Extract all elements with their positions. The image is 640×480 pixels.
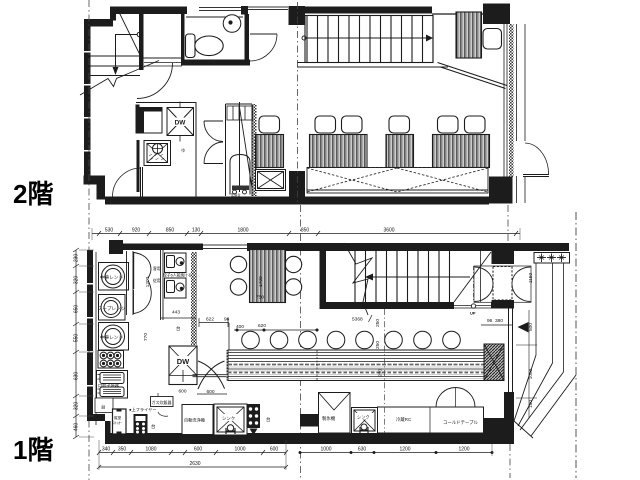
svg-text:650: 650: [74, 305, 80, 314]
svg-text:920: 920: [132, 228, 141, 234]
svg-text:1200: 1200: [145, 276, 151, 287]
svg-text:340: 340: [102, 447, 111, 453]
svg-text:1000: 1000: [320, 447, 331, 453]
svg-text:600: 600: [194, 447, 203, 453]
svg-text:230: 230: [74, 254, 80, 263]
svg-text:餃子6人前焼ける台: 餃子6人前焼ける台: [163, 273, 196, 278]
svg-text:ｽﾄｯｶｰ: ｽﾄｯｶｰ: [113, 420, 122, 425]
svg-text:中華レンジ: 中華レンジ: [100, 274, 123, 281]
svg-text:従用: 従用: [153, 278, 161, 283]
svg-text:600: 600: [179, 389, 187, 395]
svg-text:2630: 2630: [189, 461, 200, 467]
svg-text:550: 550: [74, 334, 80, 343]
svg-text:中華レンジ: 中華レンジ: [100, 334, 123, 341]
svg-text:130: 130: [192, 228, 201, 234]
svg-text:96: 96: [487, 318, 493, 324]
svg-text:製氷機: 製氷機: [322, 415, 336, 422]
svg-text:380: 380: [495, 318, 503, 324]
svg-text:770: 770: [143, 333, 149, 341]
svg-text:台: 台: [101, 404, 106, 411]
svg-text:1800: 1800: [237, 228, 248, 234]
svg-text:350: 350: [118, 447, 127, 453]
svg-text:1200: 1200: [399, 447, 410, 453]
svg-text:配膳台: 配膳台: [231, 192, 241, 197]
svg-text:DW: DW: [175, 120, 187, 127]
svg-text:620: 620: [258, 323, 266, 329]
svg-text:96: 96: [224, 317, 230, 323]
svg-text:320: 320: [74, 402, 80, 411]
svg-text:750: 750: [256, 295, 264, 301]
svg-text:530: 530: [105, 228, 114, 234]
svg-text:1150: 1150: [528, 273, 534, 284]
svg-text:口餃子焼器: 口餃子焼器: [98, 382, 120, 389]
svg-text:1階: 1階: [13, 435, 53, 465]
svg-text:ガス炊飯器: ガス炊飯器: [152, 399, 172, 405]
svg-text:622: 622: [206, 317, 214, 323]
svg-text:3600: 3600: [383, 228, 394, 234]
svg-text:600: 600: [207, 389, 215, 395]
svg-text:コールドテーブル: コールドテーブル: [443, 419, 478, 426]
svg-text:1200: 1200: [458, 447, 469, 453]
svg-text:DW: DW: [177, 357, 190, 366]
svg-text:1000: 1000: [234, 447, 245, 453]
svg-text:250: 250: [375, 341, 381, 349]
svg-text:1080: 1080: [145, 447, 156, 453]
svg-text:460: 460: [74, 423, 80, 432]
svg-text:自動洗浄機: 自動洗浄機: [184, 417, 206, 424]
svg-text:250: 250: [375, 319, 381, 327]
svg-text:客用: 客用: [153, 266, 161, 271]
svg-text:台: 台: [151, 423, 156, 430]
svg-text:●上フライヤー: ●上フライヤー: [129, 406, 157, 413]
svg-text:850: 850: [166, 228, 175, 234]
svg-text:443: 443: [172, 310, 180, 316]
svg-text:冷蔵RC: 冷蔵RC: [396, 416, 411, 423]
svg-text:縦型: 縦型: [114, 415, 122, 420]
svg-text:320: 320: [74, 276, 80, 285]
svg-text:400: 400: [236, 324, 244, 330]
svg-text:850: 850: [301, 228, 310, 234]
svg-text:600: 600: [270, 447, 279, 453]
svg-text:2階: 2階: [13, 179, 53, 209]
svg-text:UP: UP: [470, 311, 476, 316]
svg-text:1700: 1700: [258, 276, 264, 287]
svg-text:台: 台: [176, 325, 181, 332]
svg-text:200: 200: [378, 369, 384, 377]
svg-text:630: 630: [74, 372, 80, 381]
svg-text:630: 630: [358, 447, 367, 453]
svg-text:台: 台: [266, 416, 271, 423]
svg-text:5368: 5368: [352, 317, 363, 323]
